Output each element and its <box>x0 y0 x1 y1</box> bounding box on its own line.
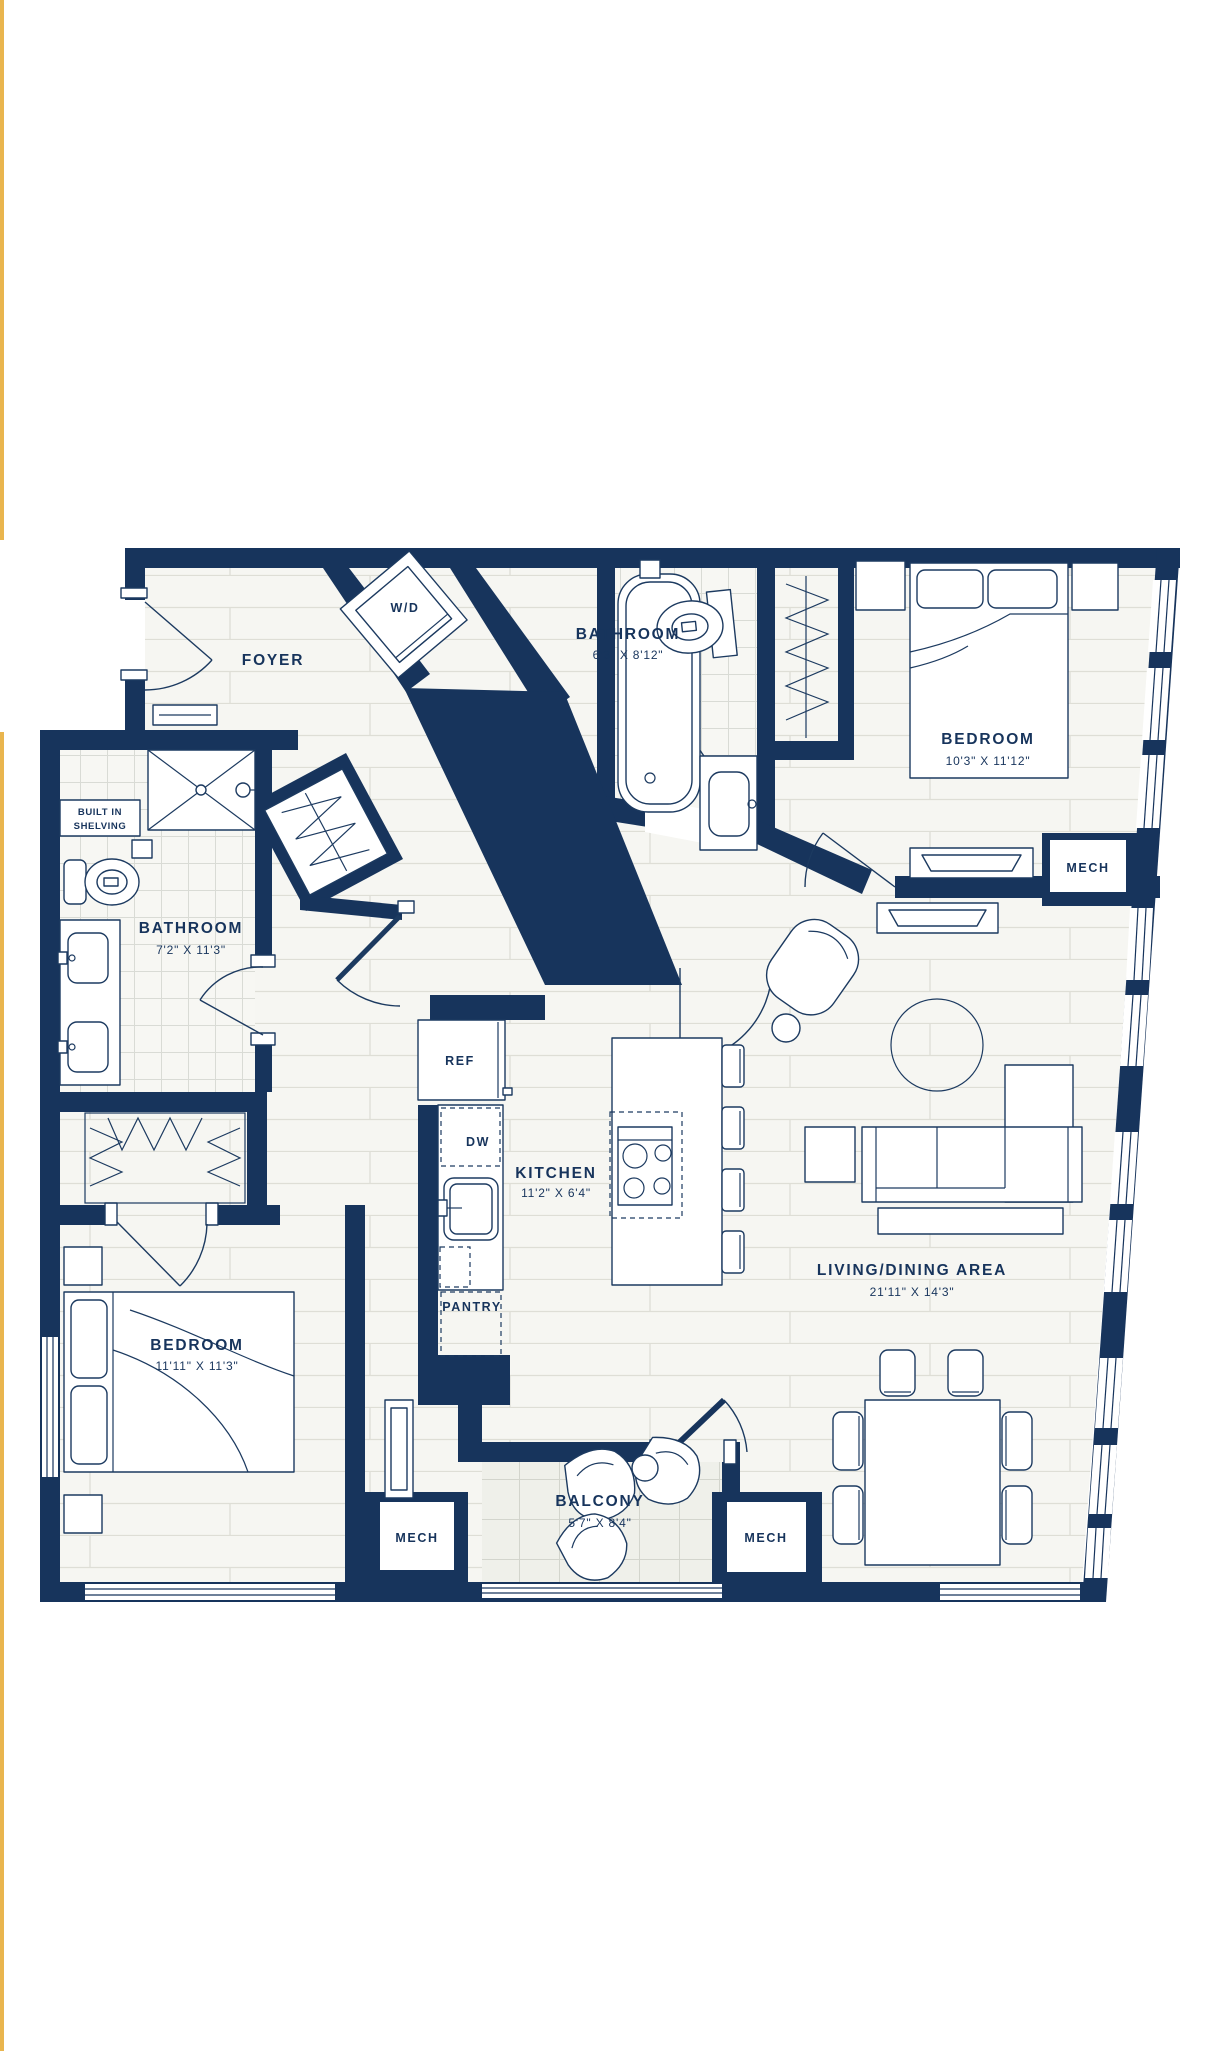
bathroom-top-label: BATHROOM <box>576 626 681 643</box>
pantry-label: PANTRY <box>442 1300 502 1314</box>
tp-holder-icon <box>640 560 660 578</box>
floor-plan-page: FOYER W/D BATHROOM 6'3" X 8'12" <box>0 0 1221 2051</box>
side-table-icon <box>772 1014 800 1042</box>
bathroom-top-dims: 6'3" X 8'12" <box>593 648 664 662</box>
bedroom-top-dims: 10'3" X 11'12" <box>946 754 1031 768</box>
bedroom-top-label: BEDROOM <box>941 731 1035 748</box>
kitchen-dims: 11'2" X 6'4" <box>521 1186 591 1200</box>
mech-right-label: MECH <box>744 1531 787 1545</box>
nightstand-icon <box>856 561 905 610</box>
balcony-table-icon <box>632 1455 658 1481</box>
coffee-table-icon <box>878 1208 1063 1234</box>
bathroom-left-label: BATHROOM <box>139 920 244 937</box>
nightstand-icon <box>64 1247 102 1285</box>
cabinet-icon <box>385 1400 413 1498</box>
kitchen-label: KITCHEN <box>515 1165 597 1182</box>
nightstand-icon <box>64 1495 102 1533</box>
stove-icon <box>618 1127 672 1205</box>
shower-icon <box>148 750 255 830</box>
kitchen-island <box>610 1038 722 1285</box>
side-table-icon <box>805 1127 855 1182</box>
balcony-dims: 5'7" X 8'4" <box>568 1516 631 1530</box>
sink-icon <box>438 1178 498 1240</box>
built-in-shelving-box: BUILT IN SHELVING <box>60 800 140 836</box>
bedroom-bottom-dims: 11'11" X 11'3" <box>155 1359 238 1373</box>
console-icon <box>910 848 1033 878</box>
mech-left-label: MECH <box>395 1531 438 1545</box>
double-vanity-icon <box>58 920 120 1085</box>
dishwasher-label: DW <box>466 1135 490 1149</box>
svg-text:SHELVING: SHELVING <box>74 821 127 832</box>
bedroom-bottom-label: BEDROOM <box>150 1337 244 1354</box>
nightstand-icon <box>1072 563 1118 610</box>
accent-stripe <box>0 0 4 2051</box>
mech-bedroom-label: MECH <box>1066 861 1109 875</box>
laundry-label: W/D <box>390 601 419 615</box>
living-dims: 21'11" X 14'3" <box>870 1285 955 1299</box>
living-label: LIVING/DINING AREA <box>817 1262 1007 1279</box>
foyer-label: FOYER <box>242 652 304 669</box>
console-icon <box>877 903 998 933</box>
balcony-label: BALCONY <box>555 1493 644 1510</box>
dining-table-icon <box>865 1400 1000 1565</box>
bed-icon <box>64 1292 294 1472</box>
svg-text:BUILT IN: BUILT IN <box>78 807 122 818</box>
tp-holder-icon <box>132 840 152 858</box>
bathroom-left-dims: 7'2" X 11'3" <box>156 943 226 957</box>
toilet-icon <box>64 859 139 905</box>
fridge-label: REF <box>445 1054 475 1068</box>
floor-plan-image: FOYER W/D BATHROOM 6'3" X 8'12" <box>0 0 1221 2051</box>
vanity-icon <box>700 756 757 850</box>
